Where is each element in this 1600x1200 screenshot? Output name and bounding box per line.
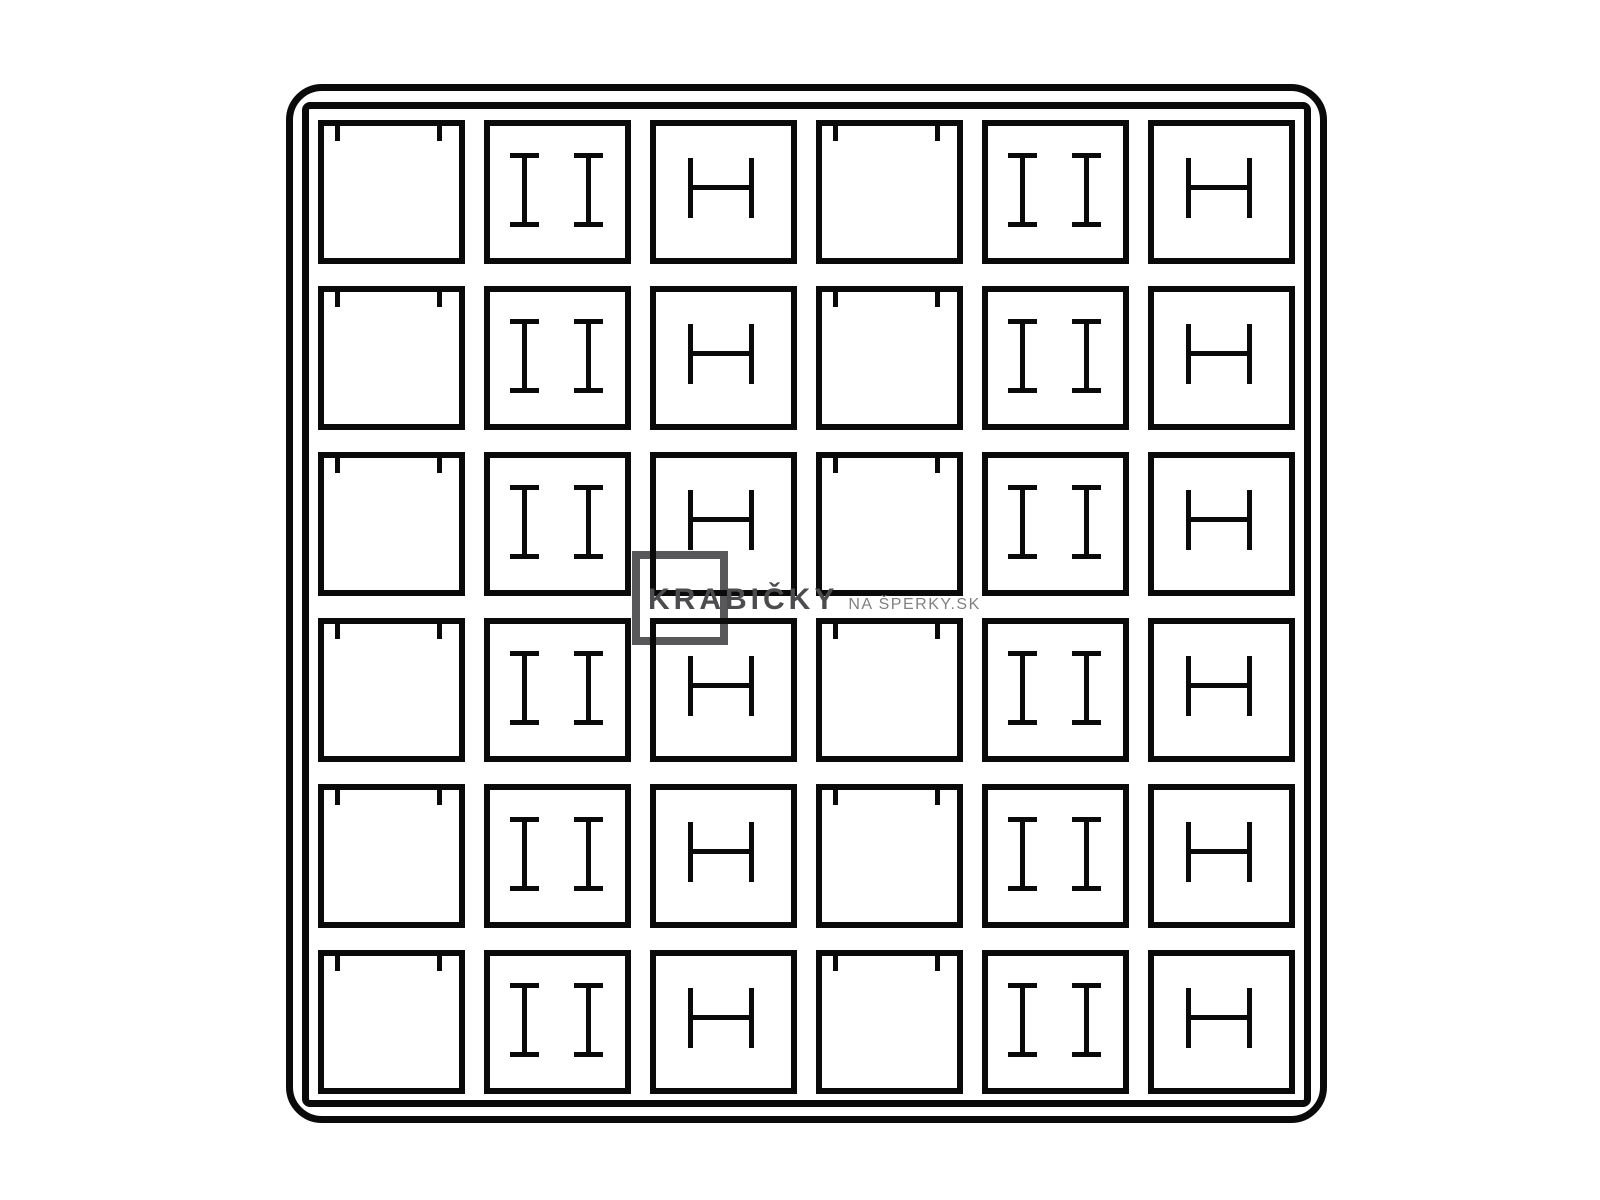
compartment-h-slot: [1148, 286, 1295, 430]
h-slot-icon: [1186, 822, 1252, 882]
post-ibeam-icon: [574, 651, 603, 725]
clip-tick-icon: [437, 790, 442, 805]
compartment-clip-square: [318, 286, 465, 430]
compartment-h-slot: [1148, 618, 1295, 762]
jewelry-tray-diagram: KRABIČKY NA ŠPERKY.SK: [0, 0, 1600, 1200]
post-ibeam-icon: [1072, 485, 1101, 559]
compartment-h-slot: [650, 950, 797, 1094]
h-slot-icon: [1186, 490, 1252, 550]
compartment-double-post: [982, 452, 1129, 596]
compartment-clip-square: [318, 618, 465, 762]
clip-tick-icon: [335, 790, 340, 805]
clip-tick-icon: [335, 126, 340, 141]
clip-tick-icon: [935, 292, 940, 307]
post-ibeam-icon: [510, 319, 539, 393]
post-ibeam-icon: [510, 485, 539, 559]
h-slot-icon: [1186, 988, 1252, 1048]
watermark: KRABIČKY NA ŠPERKY.SK: [648, 585, 981, 615]
post-ibeam-icon: [1008, 651, 1037, 725]
post-ibeam-icon: [574, 817, 603, 891]
compartment-clip-square: [816, 452, 963, 596]
compartment-clip-square: [318, 950, 465, 1094]
compartment-h-slot: [650, 286, 797, 430]
post-ibeam-icon: [1008, 983, 1037, 1057]
compartment-clip-square: [318, 452, 465, 596]
compartment-double-post: [982, 784, 1129, 928]
h-slot-icon: [688, 656, 754, 716]
compartment-double-post: [484, 618, 631, 762]
clip-tick-icon: [833, 126, 838, 141]
compartment-double-post: [982, 950, 1129, 1094]
compartment-h-slot: [1148, 950, 1295, 1094]
compartment-clip-square: [318, 120, 465, 264]
compartment-clip-square: [318, 784, 465, 928]
compartment-h-slot: [1148, 120, 1295, 264]
clip-tick-icon: [335, 458, 340, 473]
post-ibeam-icon: [510, 153, 539, 227]
h-slot-icon: [688, 158, 754, 218]
clip-tick-icon: [935, 458, 940, 473]
compartment-clip-square: [816, 950, 963, 1094]
compartment-double-post: [982, 618, 1129, 762]
watermark-suffix-text: NA ŠPERKY.SK: [848, 597, 980, 613]
compartment-double-post: [484, 784, 631, 928]
compartment-double-post: [484, 286, 631, 430]
compartment-h-slot: [650, 452, 797, 596]
clip-tick-icon: [935, 624, 940, 639]
h-slot-icon: [688, 490, 754, 550]
compartment-h-slot: [650, 120, 797, 264]
compartment-double-post: [484, 120, 631, 264]
post-ibeam-icon: [574, 153, 603, 227]
h-slot-icon: [1186, 158, 1252, 218]
compartment-clip-square: [816, 784, 963, 928]
compartment-h-slot: [1148, 784, 1295, 928]
clip-tick-icon: [437, 956, 442, 971]
watermark-brand-text: KRABIČKY: [648, 585, 838, 615]
compartment-double-post: [982, 120, 1129, 264]
clip-tick-icon: [437, 624, 442, 639]
clip-tick-icon: [437, 292, 442, 307]
post-ibeam-icon: [1008, 153, 1037, 227]
post-ibeam-icon: [1008, 817, 1037, 891]
post-ibeam-icon: [1072, 153, 1101, 227]
post-ibeam-icon: [1008, 319, 1037, 393]
post-ibeam-icon: [1008, 485, 1037, 559]
clip-tick-icon: [335, 292, 340, 307]
post-ibeam-icon: [574, 983, 603, 1057]
clip-tick-icon: [935, 790, 940, 805]
clip-tick-icon: [833, 458, 838, 473]
post-ibeam-icon: [1072, 817, 1101, 891]
post-ibeam-icon: [510, 983, 539, 1057]
h-slot-icon: [688, 324, 754, 384]
clip-tick-icon: [935, 126, 940, 141]
h-slot-icon: [688, 822, 754, 882]
compartment-double-post: [484, 452, 631, 596]
clip-tick-icon: [833, 956, 838, 971]
compartment-h-slot: [650, 784, 797, 928]
post-ibeam-icon: [510, 651, 539, 725]
clip-tick-icon: [833, 624, 838, 639]
h-slot-icon: [688, 988, 754, 1048]
clip-tick-icon: [335, 624, 340, 639]
h-slot-icon: [1186, 656, 1252, 716]
clip-tick-icon: [437, 126, 442, 141]
compartment-double-post: [484, 950, 631, 1094]
clip-tick-icon: [833, 790, 838, 805]
h-slot-icon: [1186, 324, 1252, 384]
clip-tick-icon: [935, 956, 940, 971]
compartment-clip-square: [816, 286, 963, 430]
clip-tick-icon: [833, 292, 838, 307]
compartment-clip-square: [816, 120, 963, 264]
clip-tick-icon: [437, 458, 442, 473]
post-ibeam-icon: [510, 817, 539, 891]
compartment-double-post: [982, 286, 1129, 430]
post-ibeam-icon: [574, 319, 603, 393]
post-ibeam-icon: [1072, 983, 1101, 1057]
post-ibeam-icon: [1072, 651, 1101, 725]
post-ibeam-icon: [574, 485, 603, 559]
clip-tick-icon: [335, 956, 340, 971]
compartment-clip-square: [816, 618, 963, 762]
post-ibeam-icon: [1072, 319, 1101, 393]
compartment-h-slot: [650, 618, 797, 762]
compartment-h-slot: [1148, 452, 1295, 596]
